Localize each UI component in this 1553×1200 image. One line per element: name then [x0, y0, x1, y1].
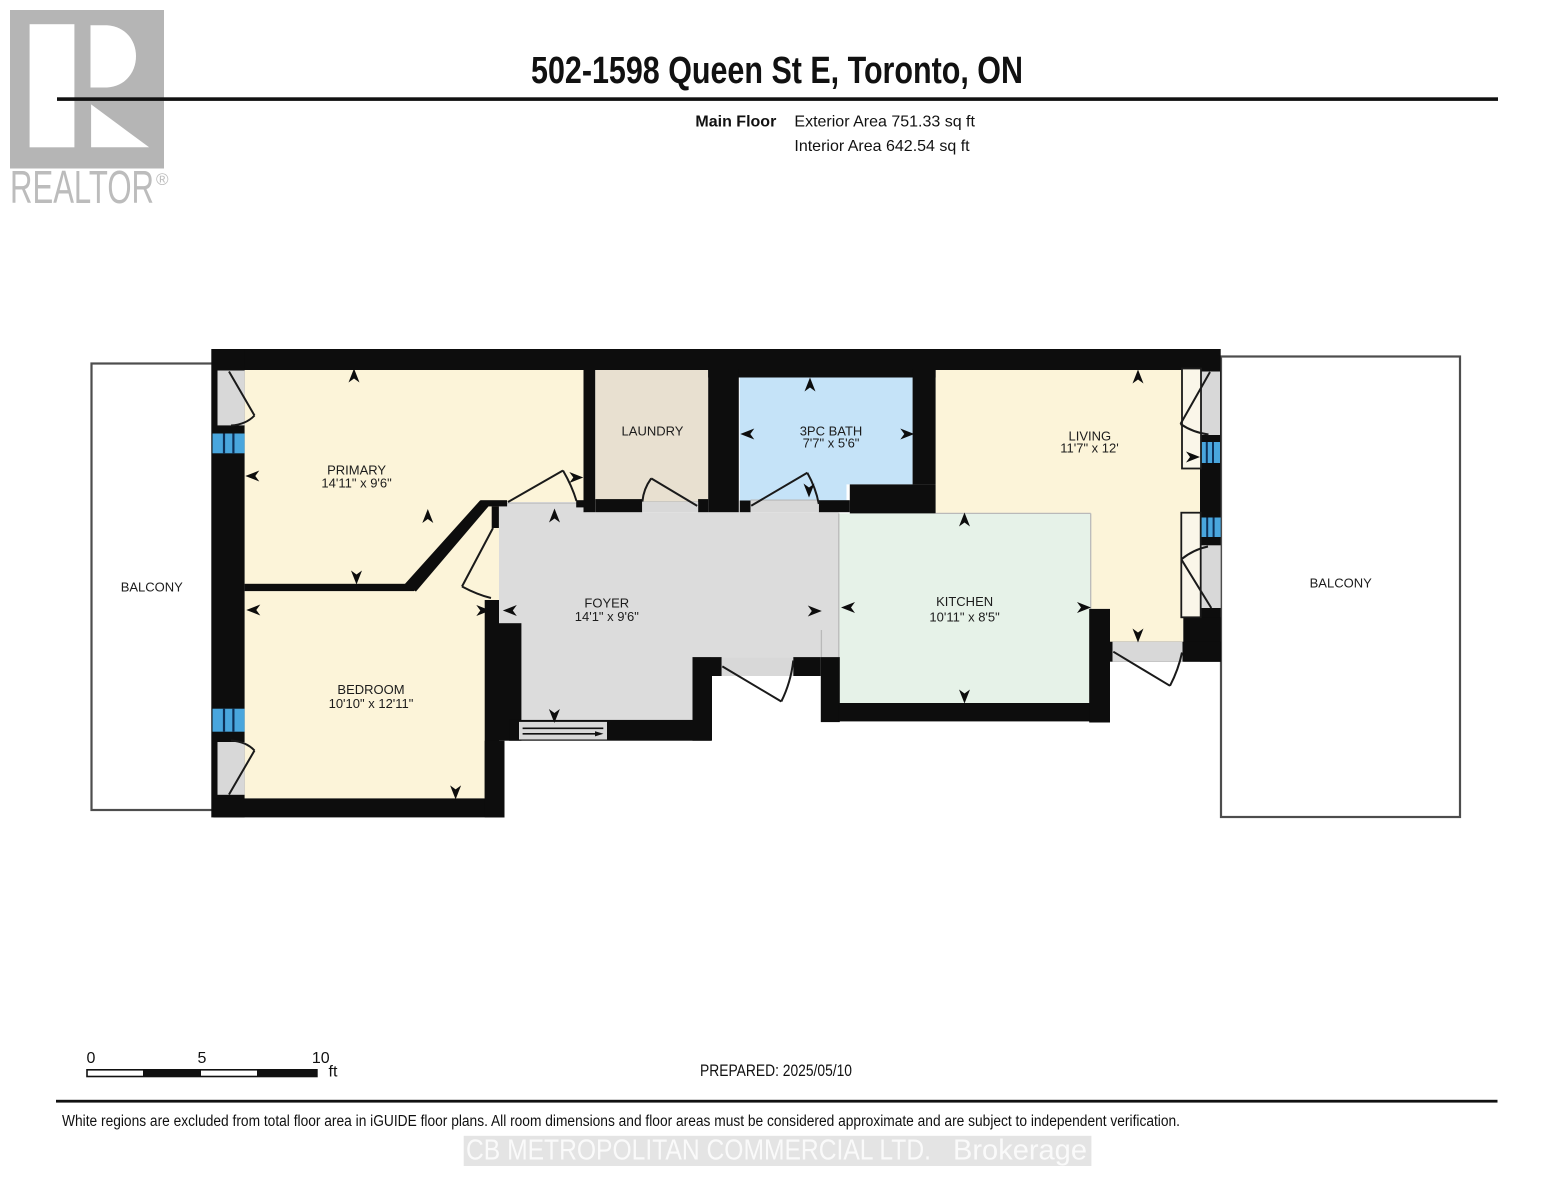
- svg-text:5: 5: [198, 1050, 207, 1067]
- svg-text:ft: ft: [329, 1064, 338, 1081]
- svg-text:10'11" x 8'5": 10'11" x 8'5": [929, 609, 1000, 624]
- svg-text:CB METROPOLITAN COMMERCIAL LTD: CB METROPOLITAN COMMERCIAL LTD.: [466, 1135, 931, 1167]
- svg-text:7'7" x 5'6": 7'7" x 5'6": [803, 436, 860, 451]
- svg-text:White regions are excluded fro: White regions are excluded from total fl…: [62, 1113, 1180, 1130]
- svg-text:BEDROOM: BEDROOM: [337, 682, 404, 697]
- svg-text:REALTOR: REALTOR: [10, 161, 154, 213]
- svg-text:KITCHEN: KITCHEN: [936, 594, 993, 609]
- svg-text:Brokerage: Brokerage: [953, 1135, 1087, 1167]
- svg-text:10: 10: [312, 1050, 330, 1067]
- svg-text:BALCONY: BALCONY: [1310, 575, 1372, 590]
- svg-text:Interior Area 642.54 sq ft: Interior Area 642.54 sq ft: [794, 138, 970, 155]
- svg-text:Exterior Area 751.33 sq ft: Exterior Area 751.33 sq ft: [794, 114, 975, 131]
- svg-text:14'11" x 9'6": 14'11" x 9'6": [321, 475, 392, 490]
- svg-text:PREPARED: 2025/05/10: PREPARED: 2025/05/10: [700, 1062, 852, 1080]
- svg-text:10'10" x 12'11": 10'10" x 12'11": [329, 696, 414, 711]
- svg-text:14'1" x 9'6": 14'1" x 9'6": [575, 609, 639, 624]
- svg-text:Main Floor: Main Floor: [695, 114, 776, 131]
- svg-text:®: ®: [156, 170, 169, 189]
- svg-text:BALCONY: BALCONY: [121, 579, 183, 594]
- svg-text:LAUNDRY: LAUNDRY: [622, 423, 684, 438]
- svg-text:11'7" x 12': 11'7" x 12': [1060, 440, 1119, 455]
- svg-text:0: 0: [87, 1050, 96, 1067]
- svg-text:502-1598 Queen St E, Toronto,: 502-1598 Queen St E, Toronto, ON: [531, 50, 1023, 92]
